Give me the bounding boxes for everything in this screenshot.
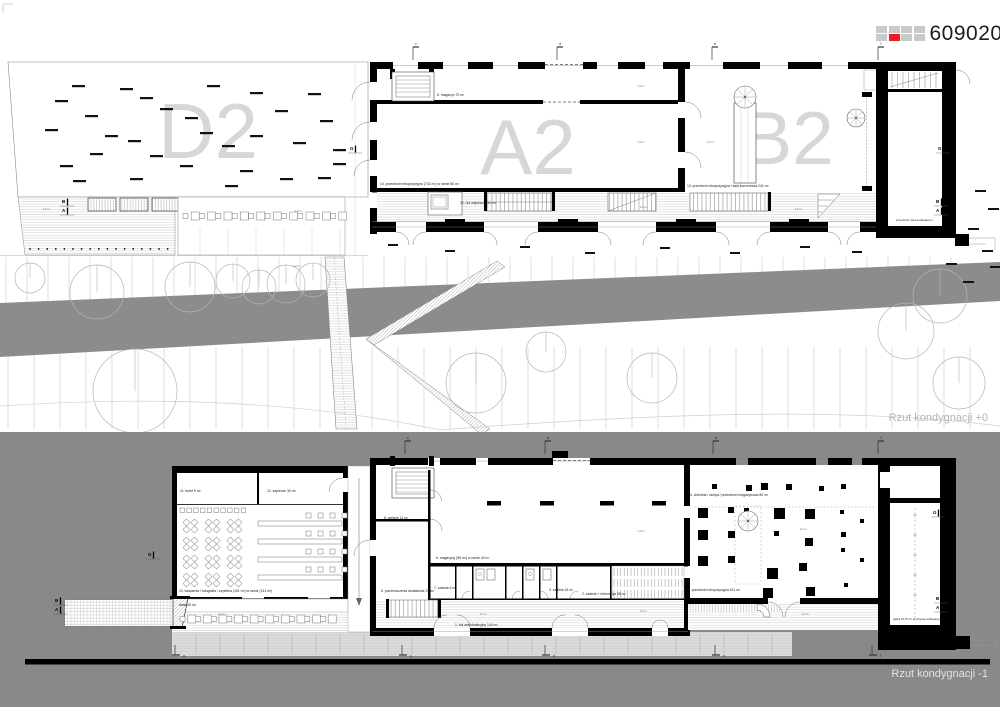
axis-letter: d (553, 654, 555, 658)
planter (281, 214, 286, 219)
site-plan (0, 256, 1000, 435)
planter (183, 214, 188, 219)
axis-letter: f (880, 654, 881, 658)
chair (342, 531, 347, 536)
apron-mark (585, 252, 595, 254)
bollard (72, 248, 74, 250)
chair (180, 508, 185, 513)
section-letter: G (350, 146, 354, 151)
bench-mark (72, 85, 85, 87)
room-label: 1,2 m (638, 529, 645, 533)
column (728, 556, 735, 563)
planter (219, 615, 227, 623)
planter (224, 212, 232, 220)
room-label: 10. kawiarnia / fotografia / czytelnia (… (179, 589, 272, 593)
bench-mark (128, 140, 141, 142)
bollard (167, 248, 169, 250)
planter (258, 617, 263, 622)
column (841, 484, 846, 489)
planter (328, 615, 336, 623)
room-label: 1,2 m (295, 209, 302, 213)
planter (249, 214, 254, 219)
bench-mark (275, 110, 288, 112)
legend-cell (914, 34, 925, 41)
room-label: 1,2 m (218, 612, 225, 616)
bench-mark (90, 153, 103, 155)
section-letter: G (938, 146, 942, 151)
chair (330, 549, 335, 554)
axis-letter: d (559, 42, 561, 46)
planter (290, 212, 298, 220)
bench-mark (240, 170, 253, 172)
bollard (98, 248, 100, 250)
terrain-lines (0, 401, 1000, 430)
column (799, 563, 807, 571)
bench-mark (308, 93, 321, 95)
column (698, 556, 708, 566)
bollard (46, 248, 48, 250)
bench-mark (60, 165, 73, 167)
apron-mark (660, 247, 670, 249)
column (761, 483, 768, 490)
column (774, 508, 785, 519)
chair (318, 567, 323, 572)
room-label: 1,2 m (43, 207, 50, 211)
axis-letter: e (723, 654, 725, 658)
planter (196, 617, 201, 622)
planter (216, 214, 221, 219)
planter (322, 212, 330, 220)
planter (289, 617, 294, 622)
bench-mark (225, 185, 238, 187)
bollard (158, 248, 160, 250)
road (0, 262, 1000, 357)
bench-mark (250, 135, 263, 137)
column (763, 588, 773, 598)
planter (313, 615, 321, 623)
axis-letter: e (714, 42, 716, 46)
room-label: 2. szatnia + informacja 36 m² (582, 592, 626, 596)
planter (199, 214, 204, 219)
chair (330, 513, 335, 518)
chair (207, 508, 212, 513)
bench-mark (180, 165, 193, 167)
room-label: 1,2 m (638, 140, 645, 144)
entry-code-block: 609020 (876, 23, 1000, 44)
chair (234, 508, 239, 513)
planter (242, 617, 247, 622)
chair (214, 508, 219, 513)
bollard (55, 248, 57, 250)
column (860, 519, 864, 523)
planter-row-upper (183, 212, 347, 220)
planter (211, 617, 216, 622)
planter (306, 212, 314, 220)
apron-mark (730, 252, 740, 254)
column (840, 510, 844, 514)
room-label: 1,2 m (480, 612, 487, 616)
room-label: 3. szatnia 15 m² (549, 588, 574, 592)
bench-mark (333, 149, 346, 151)
planter (180, 617, 185, 622)
legend-cell (876, 34, 887, 41)
caption-upper-plan: Rzut kondygnacji +0 (889, 412, 988, 424)
chair (221, 508, 226, 513)
chair (306, 531, 311, 536)
planter (188, 615, 196, 623)
column (805, 538, 813, 546)
legend-cell (914, 26, 925, 33)
chair (342, 513, 347, 518)
column (844, 583, 848, 587)
bollard (132, 248, 134, 250)
section-letter: G (148, 552, 152, 557)
bench-mark (990, 266, 1000, 268)
column (806, 587, 815, 596)
planter (314, 214, 319, 219)
chair (318, 513, 323, 518)
bench-mark (975, 190, 986, 192)
bench-mark (320, 120, 333, 122)
planter (227, 617, 232, 622)
chair (194, 508, 199, 513)
apron-mark (800, 246, 810, 248)
zone-label-D2: D2 (158, 87, 258, 175)
room-label: 1,2 m (800, 527, 807, 531)
crop-mark (3, 4, 13, 13)
room-label: 1,2 m (707, 140, 714, 144)
room-label: 5. pomieszczenia dodatkowe 23 m² (381, 589, 435, 593)
spiral-stair-icon (734, 86, 756, 108)
planter (331, 214, 336, 219)
bench-mark (45, 129, 58, 131)
column (841, 548, 845, 552)
chair (228, 508, 233, 513)
long-table (258, 521, 342, 526)
ground-line (25, 659, 990, 665)
room-label: 12. hol wejściowy 94 m² (460, 201, 497, 205)
apron-mark (520, 246, 530, 248)
planter (232, 214, 237, 219)
planter (240, 212, 248, 220)
bench-mark (968, 228, 979, 230)
room-label: 1,2 m (293, 264, 300, 268)
axis-letter: a (183, 654, 185, 658)
room-label: 4. przestrzeń ekspozycyjna 511 m² (688, 588, 741, 592)
apron-mark (852, 251, 862, 253)
planter (305, 617, 310, 622)
competition-board: D2A2B2D1A1B1 (0, 0, 1000, 707)
column (805, 509, 815, 519)
room-label: 14. przestrzeń ekspozycyjna (731 m²) w r… (380, 182, 460, 186)
room-label: taras 60 m² (179, 603, 197, 607)
column (767, 568, 778, 579)
planter (297, 615, 305, 623)
planter (266, 615, 274, 623)
chair (318, 531, 323, 536)
room-label: 5. magazyn 70 m² (437, 93, 465, 97)
bench-mark (318, 177, 331, 179)
column (698, 530, 708, 540)
room-label: 1,2 m (802, 612, 809, 616)
planter-row-lower (180, 615, 336, 623)
column (728, 507, 734, 513)
caption-lower-plan: Rzut kondygnacji -1 (891, 668, 988, 680)
bench-mark (250, 92, 263, 94)
column (746, 485, 752, 491)
column (860, 558, 864, 562)
planter (250, 615, 258, 623)
chair (330, 531, 335, 536)
bench-mark (120, 88, 133, 90)
column (774, 531, 779, 536)
b2-overlays (734, 103, 756, 183)
zone-label-A2: A2 (480, 103, 575, 191)
entry-code-legend (876, 26, 925, 42)
bench-mark (963, 281, 974, 283)
legend-cell (889, 26, 900, 33)
apron-marks (388, 244, 862, 254)
column (698, 508, 708, 518)
planter (320, 617, 325, 622)
bollard (141, 248, 143, 250)
bench-mark (280, 178, 293, 180)
apron-mark (388, 244, 398, 246)
room-label: przestrzeń pod amfiteatrem (896, 218, 933, 222)
planter (273, 212, 281, 220)
chair (187, 508, 192, 513)
bench-mark (55, 100, 68, 102)
bollard (64, 248, 66, 250)
bench-mark (988, 208, 999, 210)
chair (306, 513, 311, 518)
column (728, 531, 735, 538)
long-table (258, 557, 342, 562)
bollard (115, 248, 117, 250)
building-a1 (354, 451, 690, 636)
room-label: 1,2 m (795, 207, 802, 211)
bench-mark (185, 117, 198, 119)
legend-cell (876, 26, 887, 33)
column (712, 484, 717, 489)
bench-mark (222, 145, 235, 147)
bollard (107, 248, 109, 250)
chair (241, 508, 246, 513)
chair (342, 549, 347, 554)
bollard (38, 248, 40, 250)
section-letter: G (933, 510, 937, 515)
room-label: 1. hol wielofunkcyjny 144 m² (455, 623, 498, 627)
room-label: 1,2 m (638, 84, 645, 88)
chair (330, 567, 335, 572)
chair (200, 508, 205, 513)
bollard (150, 248, 152, 250)
planter (208, 212, 216, 220)
room-label: 13. przestrzeń ekspozycyjna / sala konce… (687, 184, 769, 188)
bollard (89, 248, 91, 250)
bench-mark (105, 135, 118, 137)
bollard (29, 248, 31, 250)
room-label: 7. szatnia 9 m² (434, 586, 457, 590)
entry-code: 609020 (930, 23, 1000, 44)
bench-mark (207, 85, 220, 87)
planter (265, 214, 270, 219)
column (786, 484, 792, 490)
room-label: wjazd 23,75 m² (pochylnia amfiteatru) (893, 617, 940, 621)
bench-mark (982, 250, 993, 252)
spiral-stair-icon (738, 511, 758, 531)
column (841, 532, 846, 537)
chair (318, 549, 323, 554)
bench-mark (200, 132, 213, 134)
axis-letter: f (881, 436, 882, 440)
bench-mark (150, 155, 163, 157)
long-table (258, 539, 342, 544)
bollard (81, 248, 83, 250)
planter (191, 212, 199, 220)
bench-mark (160, 108, 173, 110)
plan-drawing: D2A2B2D1A1B1 (0, 0, 1000, 707)
planter (257, 212, 265, 220)
room-label: 8. wejście 11 m² (384, 516, 409, 520)
axis-letter: c (407, 436, 409, 440)
bench-mark (140, 97, 153, 99)
room-label: 1,2 m (640, 609, 647, 613)
room-label: 3. chłodnia / rampa / przestrzeń magazyn… (690, 493, 769, 497)
room-label: 11. bufet 9 m² (180, 489, 202, 493)
chair (342, 567, 347, 572)
legend-red-cell (889, 34, 900, 41)
spiral-stair-icon (847, 109, 865, 127)
bench-mark (946, 263, 957, 265)
bench-mark (333, 163, 346, 165)
planter (298, 214, 303, 219)
planter (339, 212, 347, 220)
bollard (124, 248, 126, 250)
planter (274, 617, 279, 622)
bench-mark (85, 115, 98, 117)
bench-mark (130, 178, 143, 180)
axis-letter: e (715, 436, 717, 440)
room-label: 1,2 m (640, 205, 647, 209)
bench-mark (293, 142, 306, 144)
chair (306, 549, 311, 554)
legend-cell (901, 34, 912, 41)
legend-cell (901, 26, 912, 33)
axis-letter: d (547, 436, 549, 440)
chair (306, 567, 311, 572)
room-label: 12. zaplecze 30 m² (267, 489, 297, 493)
column (819, 486, 824, 491)
long-table (258, 575, 342, 580)
axis-letter: c (415, 42, 417, 46)
apron-mark (445, 250, 455, 252)
planter (235, 615, 243, 623)
planter (203, 615, 211, 623)
bench-mark (73, 180, 86, 182)
planter (281, 615, 289, 623)
room-label: 6. magazyny (55 m²) w ramie 42 m² (436, 556, 490, 560)
